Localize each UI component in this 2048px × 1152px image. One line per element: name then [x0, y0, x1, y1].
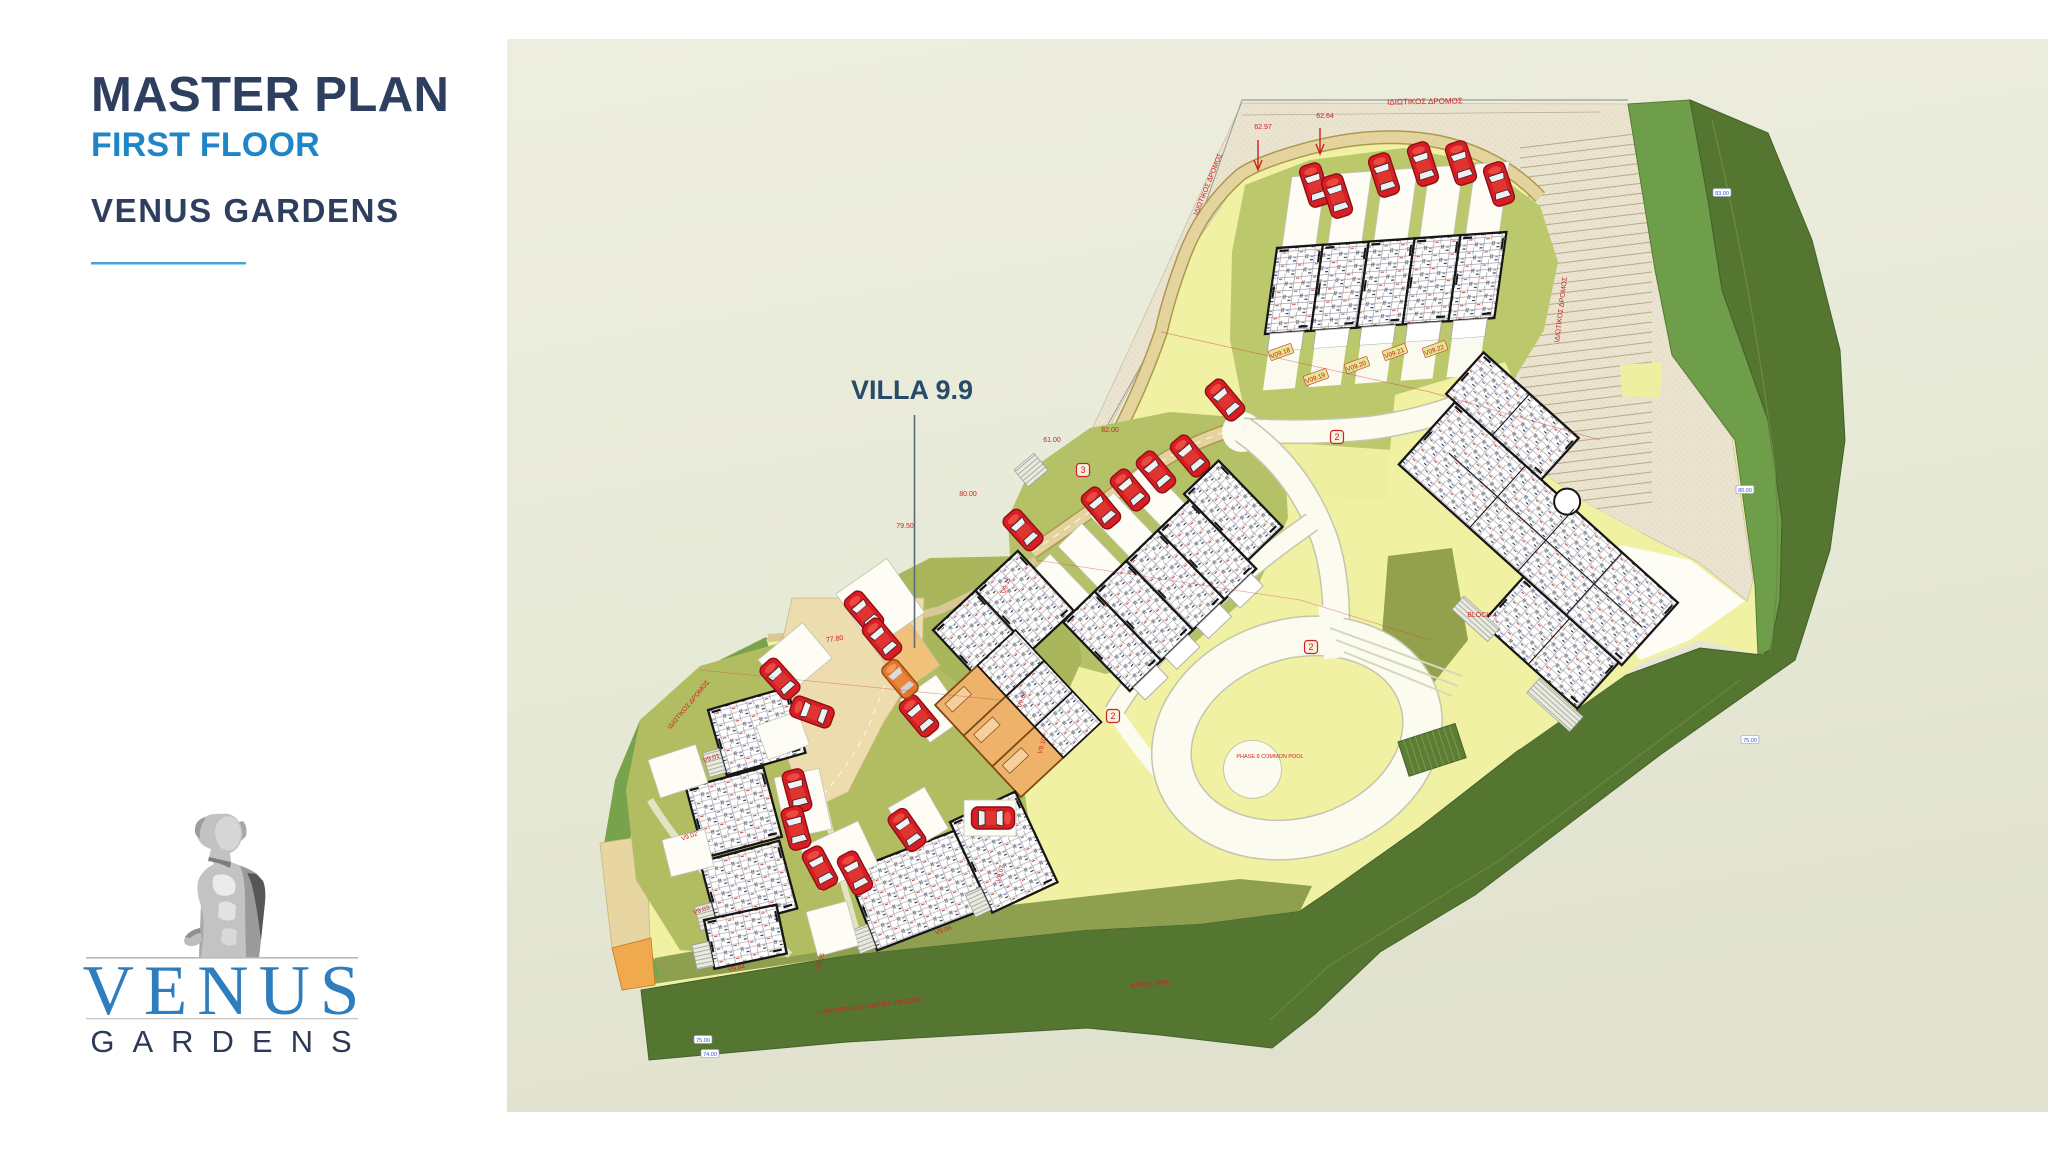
svg-text:MASTER PLAN: MASTER PLAN	[91, 68, 449, 122]
svg-text:79.50: 79.50	[896, 523, 914, 530]
svg-text:74.00: 74.00	[703, 1052, 717, 1058]
svg-text:80.00: 80.00	[1738, 488, 1752, 494]
svg-text:2: 2	[1308, 642, 1313, 652]
svg-text:80.00: 80.00	[959, 491, 977, 498]
svg-text:62.97: 62.97	[1254, 124, 1272, 131]
svg-text:2: 2	[1334, 432, 1339, 442]
svg-text:FIRST FLOOR: FIRST FLOOR	[91, 126, 320, 164]
svg-text:83.00: 83.00	[1715, 191, 1729, 197]
svg-text:75.00: 75.00	[1743, 738, 1757, 744]
svg-text:ΙΔΙΩΤΙΚΟΣ ΔΡΟΜΟΣ: ΙΔΙΩΤΙΚΟΣ ΔΡΟΜΟΣ	[1387, 96, 1463, 106]
svg-text:VENUS GARDENS: VENUS GARDENS	[91, 192, 400, 229]
svg-text:PHASE 9 COMMON POOL: PHASE 9 COMMON POOL	[1236, 754, 1303, 760]
svg-text:2: 2	[1110, 711, 1115, 721]
svg-text:GARDENS: GARDENS	[90, 1024, 369, 1059]
svg-text:3: 3	[1080, 465, 1085, 475]
svg-text:82.00: 82.00	[1101, 427, 1119, 434]
svg-text:BLOCK 4: BLOCK 4	[1467, 612, 1497, 619]
svg-text:VILLA 9.9: VILLA 9.9	[851, 375, 973, 405]
svg-text:61.00: 61.00	[1043, 437, 1061, 444]
svg-text:62.64: 62.64	[1316, 113, 1334, 120]
svg-text:75.00: 75.00	[696, 1038, 710, 1044]
